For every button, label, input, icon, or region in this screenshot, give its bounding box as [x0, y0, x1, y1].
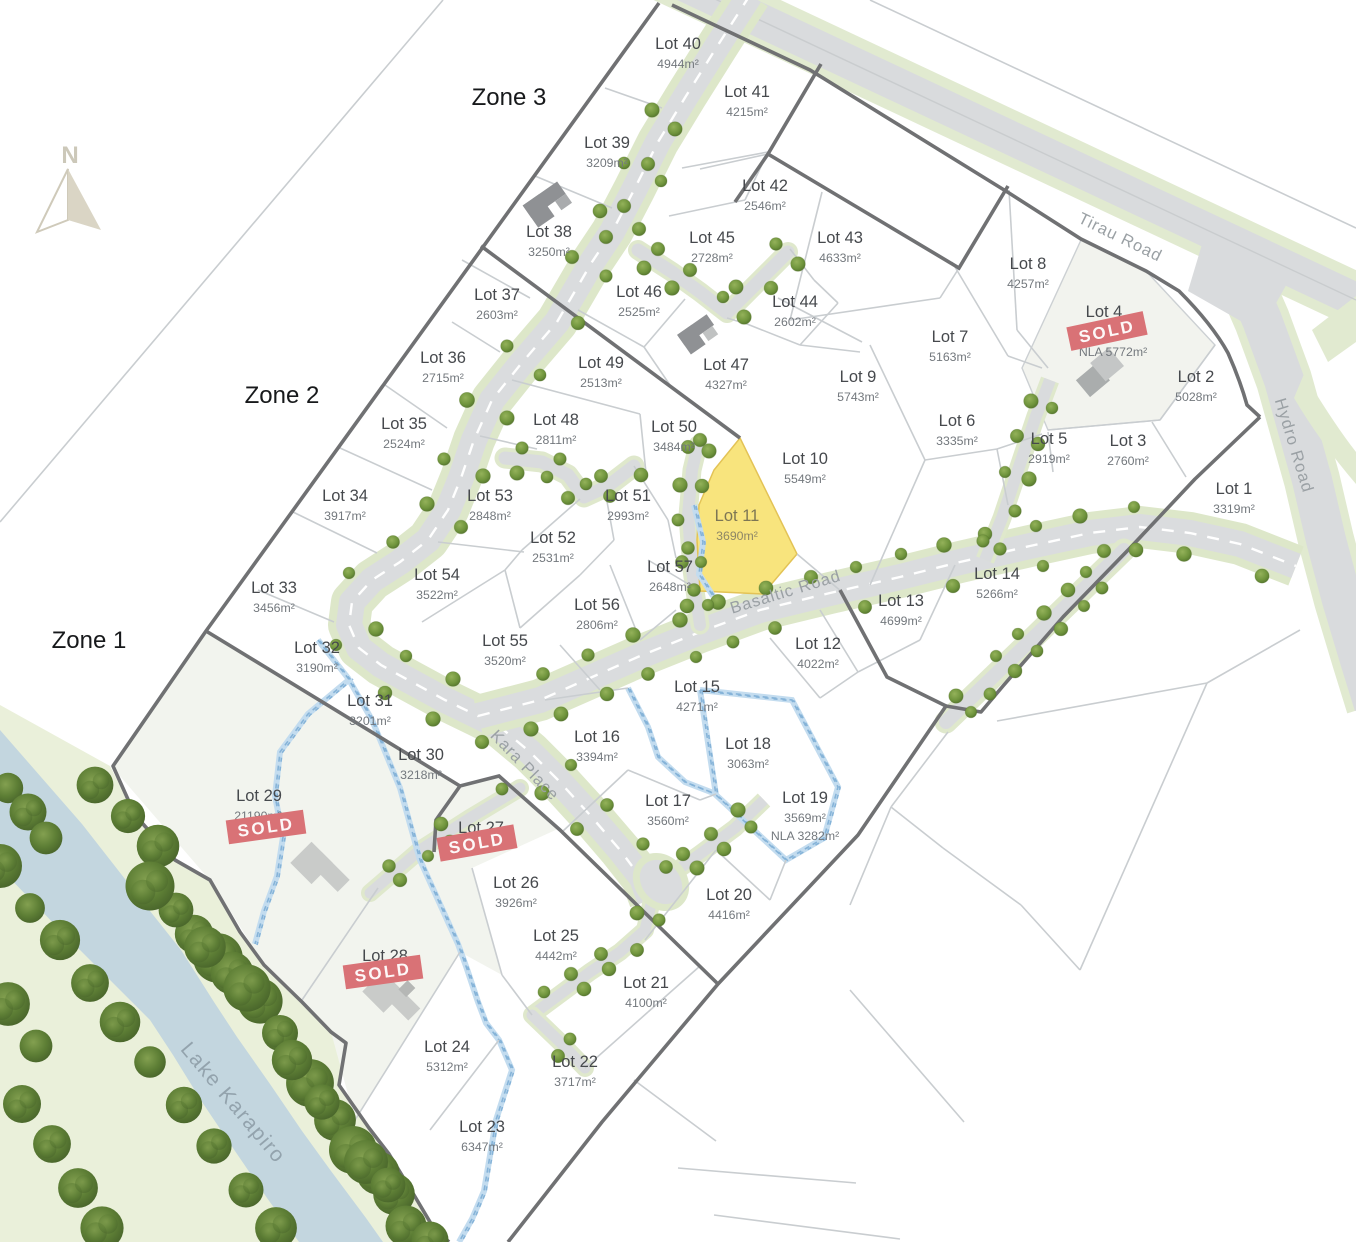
svg-text:Lot 21: Lot 21: [623, 974, 669, 992]
svg-text:3209m²: 3209m²: [586, 156, 628, 170]
svg-text:3201m²: 3201m²: [349, 714, 391, 728]
svg-text:Lot 32: Lot 32: [294, 639, 340, 657]
svg-text:4271m²: 4271m²: [676, 700, 718, 714]
svg-text:Lot 52: Lot 52: [530, 529, 576, 547]
svg-text:2524m²: 2524m²: [383, 437, 425, 451]
svg-text:Zone 1: Zone 1: [52, 627, 127, 654]
svg-text:Lot 54: Lot 54: [414, 566, 460, 584]
svg-text:NLA 5772m²: NLA 5772m²: [1079, 345, 1147, 359]
svg-text:Lot 55: Lot 55: [482, 632, 528, 650]
svg-text:Lot 46: Lot 46: [616, 283, 662, 301]
svg-text:3717m²: 3717m²: [554, 1075, 596, 1089]
svg-text:3569m²: 3569m²: [784, 811, 826, 825]
svg-text:3190m²: 3190m²: [296, 661, 338, 675]
svg-text:2546m²: 2546m²: [744, 199, 786, 213]
svg-text:Lot 41: Lot 41: [724, 83, 770, 101]
svg-text:Lot 50: Lot 50: [651, 418, 697, 436]
svg-text:3690m²: 3690m²: [716, 529, 758, 543]
svg-text:3926m²: 3926m²: [495, 896, 537, 910]
svg-text:Lot 20: Lot 20: [706, 886, 752, 904]
svg-text:Lot 38: Lot 38: [526, 223, 572, 241]
svg-text:Lot 45: Lot 45: [689, 229, 735, 247]
svg-text:Lot 5: Lot 5: [1031, 430, 1068, 448]
svg-text:Lot 39: Lot 39: [584, 134, 630, 152]
svg-text:Zone 2: Zone 2: [245, 382, 320, 409]
svg-text:3917m²: 3917m²: [324, 509, 366, 523]
svg-text:2603m²: 2603m²: [476, 308, 518, 322]
svg-text:Lot 33: Lot 33: [251, 579, 297, 597]
svg-text:3484m²: 3484m²: [653, 440, 695, 454]
svg-text:3520m²: 3520m²: [484, 654, 526, 668]
svg-text:Lot 36: Lot 36: [420, 349, 466, 367]
svg-text:3456m²: 3456m²: [253, 601, 295, 615]
svg-text:Lot 22: Lot 22: [552, 1053, 598, 1071]
svg-text:Lot 11: Lot 11: [715, 507, 760, 525]
svg-text:Lot 29: Lot 29: [236, 787, 282, 805]
svg-text:2993m²: 2993m²: [607, 509, 649, 523]
svg-text:2513m²: 2513m²: [580, 376, 622, 390]
svg-text:NLA 3282m²: NLA 3282m²: [771, 829, 839, 843]
svg-text:Lot 43: Lot 43: [817, 229, 863, 247]
svg-text:3063m²: 3063m²: [727, 757, 769, 771]
svg-text:Lot 40: Lot 40: [655, 35, 701, 53]
svg-text:Lot 42: Lot 42: [742, 177, 788, 195]
svg-text:4699m²: 4699m²: [880, 614, 922, 628]
svg-text:5743m²: 5743m²: [837, 390, 879, 404]
svg-text:Lot 1: Lot 1: [1216, 480, 1253, 498]
svg-text:5028m²: 5028m²: [1175, 390, 1217, 404]
svg-text:Lot 34: Lot 34: [322, 487, 368, 505]
svg-text:2602m²: 2602m²: [774, 315, 816, 329]
svg-text:2728m²: 2728m²: [691, 251, 733, 265]
svg-text:Lot 30: Lot 30: [398, 746, 444, 764]
svg-text:Lot 12: Lot 12: [795, 635, 841, 653]
svg-text:4442m²: 4442m²: [535, 949, 577, 963]
svg-text:Lot 56: Lot 56: [574, 596, 620, 614]
svg-text:Lot 8: Lot 8: [1010, 255, 1047, 273]
svg-text:Lot 6: Lot 6: [939, 412, 976, 430]
svg-text:2525m²: 2525m²: [618, 305, 660, 319]
svg-text:3250m²: 3250m²: [528, 245, 570, 259]
svg-text:Lot 15: Lot 15: [674, 678, 720, 696]
svg-text:Lot 37: Lot 37: [474, 286, 520, 304]
svg-text:Zone 3: Zone 3: [472, 84, 547, 111]
svg-text:4416m²: 4416m²: [708, 908, 750, 922]
svg-text:Lot 7: Lot 7: [932, 328, 969, 346]
svg-text:2806m²: 2806m²: [576, 618, 618, 632]
svg-text:5549m²: 5549m²: [784, 472, 826, 486]
svg-text:Lot 13: Lot 13: [878, 592, 924, 610]
svg-text:2760m²: 2760m²: [1107, 454, 1149, 468]
svg-text:N: N: [61, 142, 78, 169]
svg-text:Lot 18: Lot 18: [725, 735, 771, 753]
svg-text:4327m²: 4327m²: [705, 378, 747, 392]
svg-text:4944m²: 4944m²: [657, 57, 699, 71]
svg-text:3319m²: 3319m²: [1213, 502, 1255, 516]
svg-text:Lot 48: Lot 48: [533, 411, 579, 429]
svg-text:Lot 49: Lot 49: [578, 354, 624, 372]
svg-text:Lot 17: Lot 17: [645, 792, 691, 810]
svg-text:2531m²: 2531m²: [532, 551, 574, 565]
svg-text:6347m²: 6347m²: [461, 1140, 503, 1154]
svg-text:4257m²: 4257m²: [1007, 277, 1049, 291]
svg-text:2848m²: 2848m²: [469, 509, 511, 523]
svg-text:Lot 35: Lot 35: [381, 415, 427, 433]
svg-text:2919m²: 2919m²: [1028, 452, 1070, 466]
svg-text:3335m²: 3335m²: [936, 434, 978, 448]
svg-text:Lot 3: Lot 3: [1110, 432, 1147, 450]
svg-text:2715m²: 2715m²: [422, 371, 464, 385]
svg-text:Lot 16: Lot 16: [574, 728, 620, 746]
svg-text:Lot 26: Lot 26: [493, 874, 539, 892]
svg-text:Lot 47: Lot 47: [703, 356, 749, 374]
svg-text:Lot 51: Lot 51: [605, 487, 651, 505]
svg-text:4633m²: 4633m²: [819, 251, 861, 265]
svg-text:Lot 57: Lot 57: [647, 558, 693, 576]
svg-text:Lot 25: Lot 25: [533, 927, 579, 945]
svg-text:Lot 53: Lot 53: [467, 487, 513, 505]
svg-text:3218m²: 3218m²: [400, 768, 442, 782]
svg-text:Lot 19: Lot 19: [782, 789, 828, 807]
svg-text:3522m²: 3522m²: [416, 588, 458, 602]
svg-text:Lot 9: Lot 9: [840, 368, 877, 386]
svg-text:Lot 2: Lot 2: [1178, 368, 1215, 386]
svg-text:Lot 31: Lot 31: [347, 692, 393, 710]
svg-text:5312m²: 5312m²: [426, 1060, 468, 1074]
svg-text:Lot 10: Lot 10: [782, 450, 828, 468]
svg-text:5266m²: 5266m²: [976, 587, 1018, 601]
svg-text:4215m²: 4215m²: [726, 105, 768, 119]
svg-text:Lot 14: Lot 14: [974, 565, 1020, 583]
svg-text:4022m²: 4022m²: [797, 657, 839, 671]
svg-text:3394m²: 3394m²: [576, 750, 618, 764]
svg-text:3560m²: 3560m²: [647, 814, 689, 828]
svg-text:5163m²: 5163m²: [929, 350, 971, 364]
svg-text:2811m²: 2811m²: [536, 433, 577, 447]
svg-text:Lot 24: Lot 24: [424, 1038, 470, 1056]
svg-text:4100m²: 4100m²: [625, 996, 667, 1010]
svg-text:Lot 23: Lot 23: [459, 1118, 505, 1136]
svg-text:2648m²: 2648m²: [649, 580, 691, 594]
svg-text:Lot 44: Lot 44: [772, 293, 818, 311]
